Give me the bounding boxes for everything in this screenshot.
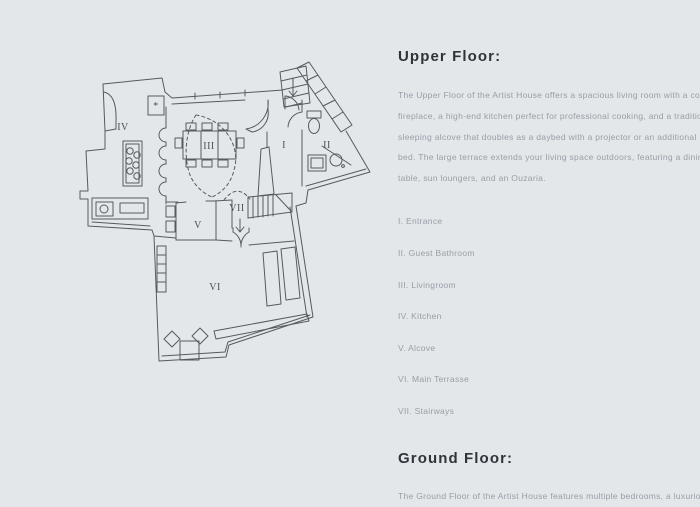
room-label-kitchen: IV <box>117 122 129 133</box>
down-arrow-icon <box>236 219 244 232</box>
colonnade <box>159 107 166 204</box>
page: IV III I II V VII VI * Upper Floor: The … <box>0 0 700 500</box>
chair-icon <box>202 160 212 167</box>
legend-item-main-terrasse: VI. Main Terrasse <box>398 374 469 386</box>
ground-floor-description: The Ground Floor of the Artist House fea… <box>398 486 700 507</box>
planter-diamond <box>192 328 208 344</box>
shelf-strip <box>157 246 166 292</box>
stairways <box>232 193 292 247</box>
burner-icon <box>127 148 133 154</box>
sink-icon <box>330 154 342 166</box>
legend-item-livingroom: III. Livingroom <box>398 280 456 292</box>
faucet-dot <box>342 165 345 168</box>
shelf-icon <box>166 206 175 217</box>
burner-icon <box>133 162 139 168</box>
room-label-livingroom: III <box>203 141 215 152</box>
room-label-stairways: VII <box>229 203 244 214</box>
terrace-bench <box>214 314 309 339</box>
room-label-guest-bathroom: II <box>323 140 331 151</box>
room-label-entrance: I <box>282 140 286 151</box>
description-line: table, sun loungers, and an Ouzaria. <box>398 168 700 189</box>
legend-item-guest-bathroom: II. Guest Bathroom <box>398 248 475 260</box>
shelf-icon <box>166 221 175 232</box>
sink-square <box>96 202 113 216</box>
planter-diamond <box>164 331 180 347</box>
sun-lounger <box>263 251 281 306</box>
terrace-features <box>157 246 309 360</box>
legend-item-stairways: VII. Stairways <box>398 406 454 418</box>
description-line: bed. The large terrace extends your livi… <box>398 147 700 168</box>
room-label-alcove: V <box>194 220 202 231</box>
ramp-stairs <box>297 62 352 132</box>
upper-floor-heading: Upper Floor: <box>398 48 501 65</box>
description-line: The Ground Floor of the Artist House fea… <box>398 486 700 507</box>
column-marker: * <box>153 101 159 112</box>
sink-icon <box>100 205 108 213</box>
upper-floor-description: The Upper Floor of the Artist House offe… <box>398 85 700 189</box>
legend-item-kitchen: IV. Kitchen <box>398 311 442 323</box>
floor-plan-image: IV III I II V VII VI * <box>55 0 400 410</box>
burner-icon <box>126 158 132 164</box>
description-line: sleeping alcove that doubles as a daybed… <box>398 127 700 148</box>
legend-item-entrance: I. Entrance <box>398 216 442 228</box>
chair-icon <box>202 123 212 130</box>
toilet-tank <box>307 111 321 118</box>
chair-icon <box>237 138 244 148</box>
legend-item-alcove: V. Alcove <box>398 343 435 355</box>
chair-icon <box>186 123 196 130</box>
swing-door <box>233 232 249 247</box>
ground-floor-heading: Ground Floor: <box>398 450 513 467</box>
description-line: fireplace, a high-end kitchen perfect fo… <box>398 106 700 127</box>
description-line: The Upper Floor of the Artist House offe… <box>398 85 700 106</box>
bathroom-walls <box>286 100 302 186</box>
fireplace <box>246 100 274 196</box>
burner-icon <box>127 168 133 174</box>
room-label-main-terrasse: VI <box>209 282 221 293</box>
chair-icon <box>175 138 182 148</box>
planter-square <box>180 341 199 360</box>
toilet-icon <box>309 119 320 134</box>
chair-icon <box>218 160 228 167</box>
